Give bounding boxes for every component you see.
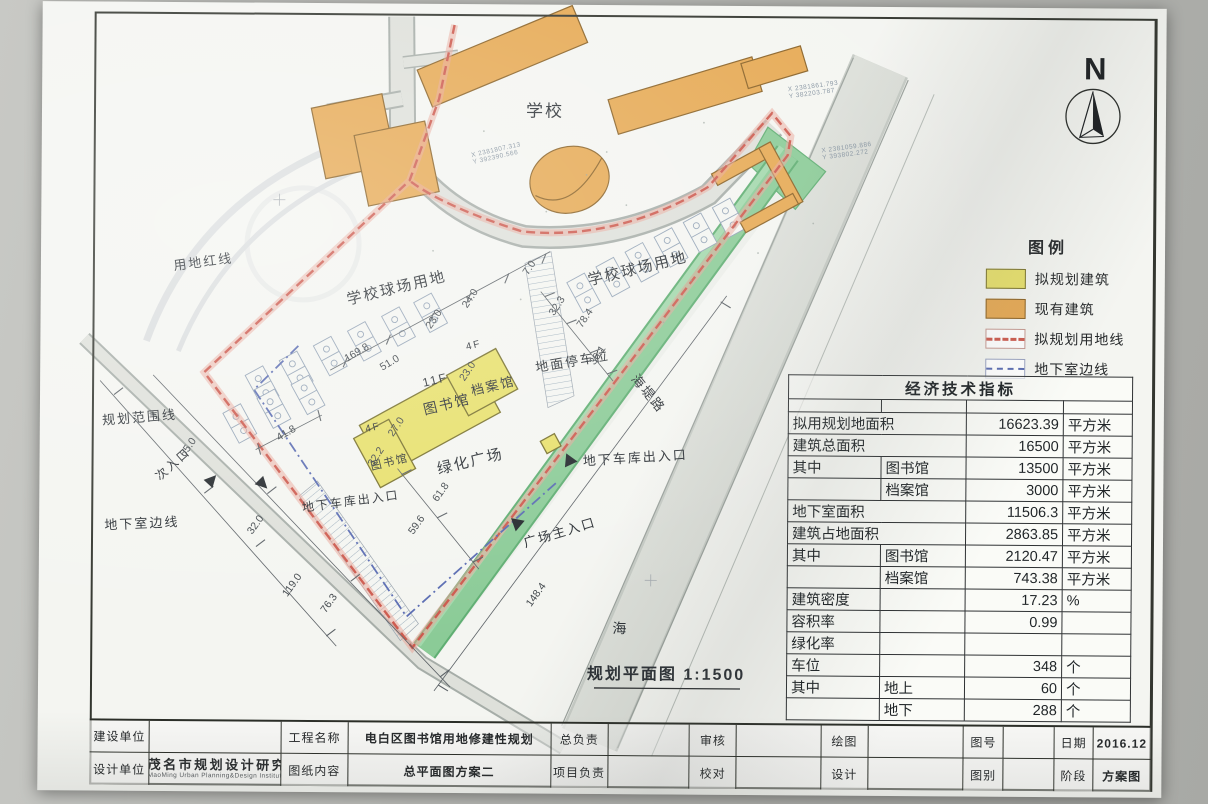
indicator-cell: % <box>1062 590 1131 612</box>
indicator-cell: 图书馆 <box>880 544 965 567</box>
indicator-cell: 平方米 <box>1063 480 1132 502</box>
titleblock-label: 图纸内容 <box>281 754 348 786</box>
indicator-row: 建筑密度17.23% <box>787 588 1131 612</box>
legend-label: 拟规划用地线 <box>1034 329 1124 350</box>
legend-item: 现有建筑 <box>986 298 1161 321</box>
titleblock-value: 方案图 <box>1093 759 1151 791</box>
indicator-cell: 建筑密度 <box>787 588 880 611</box>
indicator-row: 建筑占地面积2863.85平方米 <box>787 522 1131 546</box>
indicator-cell <box>1062 612 1131 634</box>
indicator-row: 地下288个 <box>786 698 1130 722</box>
legend-swatch-dash-red <box>985 329 1025 349</box>
indicator-cell: 建筑占地面积 <box>787 522 965 545</box>
indicator-cell: 平方米 <box>1062 524 1131 546</box>
indicator-cell <box>880 588 965 611</box>
titleblock-value: m茂名市规划设计研究院MaoMing Urban Planning&Design… <box>150 753 282 786</box>
indicator-cell: 16500 <box>966 435 1063 458</box>
indicator-cell: 档案馆 <box>880 566 965 589</box>
titleblock-value <box>608 756 690 789</box>
indicators-panel: 经济技术指标 拟用规划地面积16623.39平方米建筑总面积16500平方米其中… <box>786 374 1133 722</box>
titleblock-value <box>868 726 964 759</box>
indicator-cell: 其中 <box>787 544 880 567</box>
indicator-cell: 车位 <box>787 654 880 677</box>
indicator-cell: 平方米 <box>1063 458 1132 480</box>
titleblock-value: 总平面图方案二 <box>348 754 551 787</box>
titleblock-value <box>868 758 964 791</box>
indicator-row: 其中图书馆2120.47平方米 <box>787 544 1131 568</box>
titleblock-value <box>608 724 690 757</box>
indicator-cell: 平方米 <box>1063 436 1132 458</box>
titleblock-value <box>1004 727 1055 759</box>
titleblock-label: 绘图 <box>822 726 869 758</box>
north-indicator: N <box>1048 54 1139 160</box>
drawing-sheet: 学校用地红线学校球场用地学校球场用地规划范围线次入口地下室边线地面停车位11F图… <box>37 1 1166 798</box>
indicator-cell <box>965 633 1062 656</box>
indicator-cell <box>786 698 879 721</box>
indicator-cell <box>880 610 965 633</box>
indicator-cell: 17.23 <box>965 589 1062 612</box>
indicator-cell: 其中 <box>788 456 881 479</box>
indicator-cell: 个 <box>1061 700 1130 722</box>
indicator-cell <box>787 566 880 589</box>
titleblock-value <box>736 757 821 790</box>
indicator-cell: 11506.3 <box>966 501 1063 524</box>
indicator-cell: 档案馆 <box>881 478 966 501</box>
titleblock-label: 项目负责 <box>551 756 609 788</box>
north-label: N <box>1052 54 1138 85</box>
indicator-cell: 3000 <box>966 479 1063 502</box>
indicator-cell: 60 <box>964 677 1061 700</box>
titleblock-value <box>1004 759 1055 791</box>
legend-item: 拟规划建筑 <box>986 268 1161 291</box>
titleblock-value: 电白区图书馆用地修建性规划 <box>348 722 551 755</box>
indicator-cell <box>788 478 881 501</box>
titleblock-value: 2016.12 <box>1093 727 1151 759</box>
indicator-cell: 图书馆 <box>881 456 966 479</box>
titleblock-value <box>150 721 282 754</box>
indicator-cell <box>1062 634 1131 656</box>
titleblock-label: 校对 <box>690 757 737 789</box>
legend-items: 拟规划建筑现有建筑拟规划用地线地下室边线 <box>985 268 1161 381</box>
titleblock-value <box>737 725 822 758</box>
indicator-cell: 建筑总面积 <box>788 434 966 457</box>
indicator-cell: 地下 <box>879 698 964 721</box>
indicator-row: 车位348个 <box>787 654 1131 678</box>
legend-label: 现有建筑 <box>1035 299 1095 319</box>
indicator-row: 其中地上60个 <box>786 676 1130 700</box>
indicator-cell <box>880 632 965 655</box>
indicator-cell: 绿化率 <box>787 632 880 655</box>
indicator-row: 其中图书馆13500平方米 <box>788 456 1132 480</box>
indicator-row: 地下室面积11506.3平方米 <box>788 500 1132 524</box>
indicator-cell: 其中 <box>786 676 879 699</box>
titleblock-label: 建设单位 <box>90 720 151 752</box>
indicator-cell: 2120.47 <box>965 545 1062 568</box>
legend-swatch-fill <box>986 269 1026 289</box>
indicator-cell: 地上 <box>879 676 964 699</box>
indicator-row: 绿化率 <box>787 632 1131 656</box>
indicator-row: 拟用规划地面积16623.39平方米 <box>788 412 1132 436</box>
titleblock-label: 设计单位 <box>89 752 150 784</box>
titleblock-label: 日期 <box>1055 727 1093 759</box>
indicator-cell: 743.38 <box>965 567 1062 590</box>
indicator-cell: 地下室面积 <box>788 500 966 523</box>
titleblock-label: 工程名称 <box>282 722 349 754</box>
titleblock-label: 审核 <box>690 725 737 757</box>
titleblock-label: 设计 <box>821 758 868 790</box>
indicators-table: 经济技术指标 拟用规划地面积16623.39平方米建筑总面积16500平方米其中… <box>786 374 1133 722</box>
indicator-cell: 288 <box>964 699 1061 722</box>
legend-swatch-fill <box>986 299 1026 319</box>
titleblock-label: 阶段 <box>1055 759 1093 791</box>
indicator-cell: 平方米 <box>1062 546 1131 568</box>
indicator-cell: 348 <box>965 655 1062 678</box>
indicator-row: 容积率0.99 <box>787 610 1131 634</box>
indicators-title: 经济技术指标 <box>789 375 1133 401</box>
indicator-cell: 16623.39 <box>966 413 1063 436</box>
indicator-cell: 平方米 <box>1063 414 1132 436</box>
legend: 图例 拟规划建筑现有建筑拟规划用地线地下室边线 <box>985 234 1161 389</box>
indicator-cell: 13500 <box>966 457 1063 480</box>
legend-label: 拟规划建筑 <box>1035 269 1110 290</box>
compass-icon <box>1058 84 1128 154</box>
indicator-row: 档案馆743.38平方米 <box>787 566 1131 590</box>
indicator-cell: 平方米 <box>1063 502 1132 524</box>
indicator-cell: 平方米 <box>1062 568 1131 590</box>
titleblock-label: 总负责 <box>551 724 609 756</box>
indicator-row: 档案馆3000平方米 <box>788 478 1132 502</box>
legend-title: 图例 <box>1028 234 1161 259</box>
indicator-cell: 个 <box>1062 656 1131 678</box>
indicator-cell <box>880 654 965 677</box>
indicators-title-row: 经济技术指标 <box>789 375 1133 401</box>
legend-item: 拟规划用地线 <box>985 328 1160 351</box>
title-block: 建设单位工程名称电白区图书馆用地修建性规划总负责审核绘图图号日期2016.12设… <box>89 718 1150 791</box>
indicator-row: 建筑总面积16500平方米 <box>788 434 1132 458</box>
indicator-cell: 0.99 <box>965 611 1062 634</box>
titleblock-label: 图别 <box>963 759 1004 791</box>
indicator-cell: 拟用规划地面积 <box>788 412 966 435</box>
indicator-cell: 个 <box>1061 678 1130 700</box>
indicator-cell: 容积率 <box>787 610 880 633</box>
titleblock-label: 图号 <box>964 727 1005 759</box>
indicator-cell: 2863.85 <box>965 523 1062 546</box>
